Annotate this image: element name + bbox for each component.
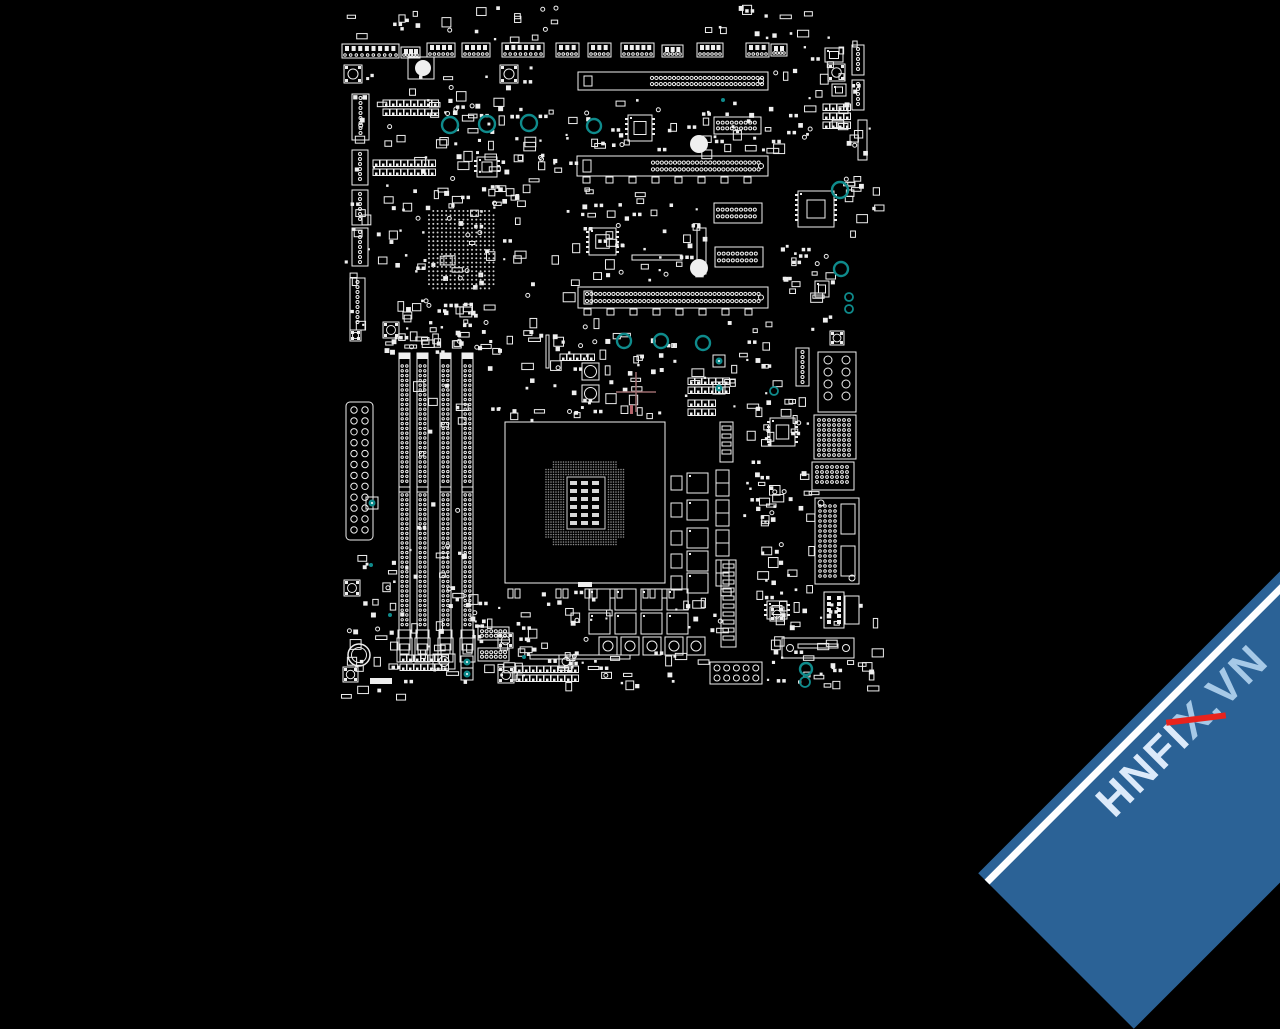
boardview-image: HNFIX.VN bbox=[0, 0, 1280, 779]
boardview-canvas bbox=[0, 0, 1280, 779]
